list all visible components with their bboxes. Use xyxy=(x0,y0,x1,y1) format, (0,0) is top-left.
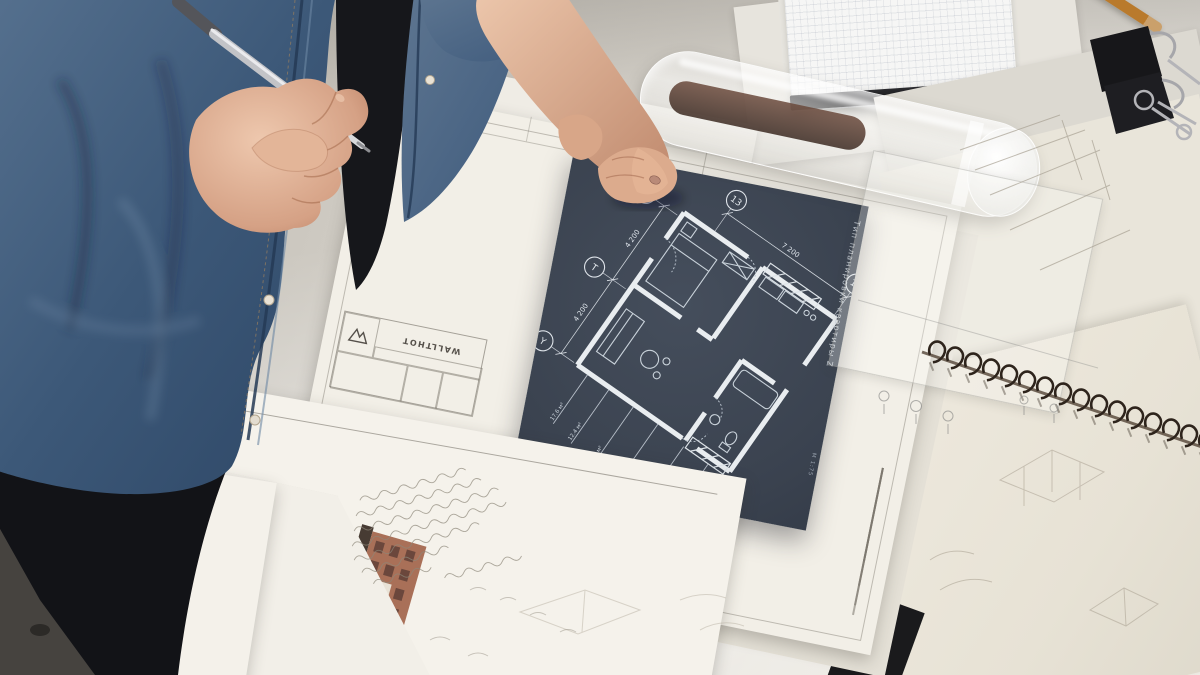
photo-architect-desk: WALLTHOT xyxy=(0,0,1200,675)
person-right-arm xyxy=(0,0,1200,675)
